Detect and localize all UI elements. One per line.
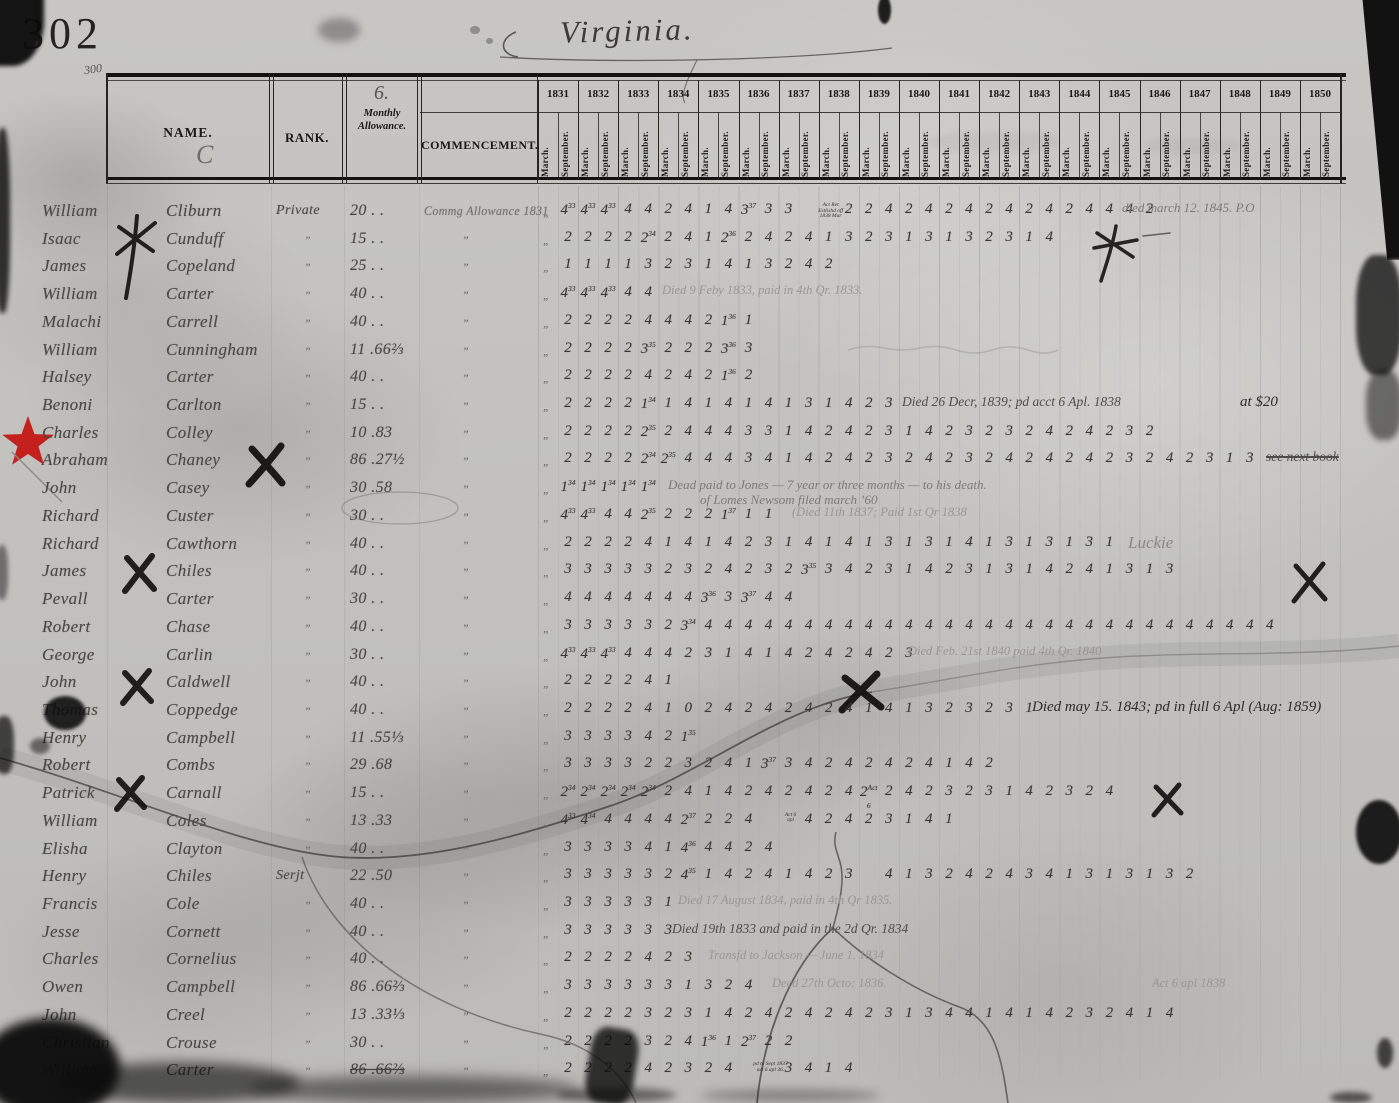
payment-digit: 2 <box>779 256 799 273</box>
payment-digit: 2 <box>698 700 718 717</box>
month-label-september: September. <box>600 114 617 177</box>
payment-digit: 4 <box>799 811 819 828</box>
surname: Campbell <box>166 728 235 748</box>
ledger-row: BenoniCarlton”15 . .”„222213414141413142… <box>0 395 1399 423</box>
payment-digit: 4 <box>1160 450 1180 467</box>
payment-digit: 3 <box>618 728 638 745</box>
payment-digit: 1 <box>779 423 799 440</box>
ledger-row: WilliamCarter”40 . .”„43343343344Died 9 … <box>0 284 1399 312</box>
rank-ditto: ” <box>304 1009 311 1024</box>
payment-digit: 4 <box>678 229 698 246</box>
allowance-value: 40 . . <box>350 535 384 553</box>
annotation-note: Died 26 Decr, 1839; pd acct 6 Apl. 1838 <box>902 394 1121 410</box>
payment-digit: 4 <box>638 700 658 717</box>
payment-digit: 3 <box>638 1033 658 1050</box>
payment-digit: 4 <box>678 783 698 800</box>
allowance-value: 30 .58 <box>350 479 392 497</box>
payment-digit: 4 <box>839 755 859 772</box>
payment-digit: 4 <box>779 645 799 662</box>
payment-digit: 2 <box>1139 450 1159 467</box>
payment-digit: 2 <box>658 506 678 523</box>
annotation-note: Dead paid to Jones — 7 year or three mon… <box>668 477 987 493</box>
surname: Custer <box>166 506 214 526</box>
commencement-ditto: ” <box>462 953 469 968</box>
payment-digit: 2 <box>658 423 678 440</box>
payment-digit: 2 <box>718 811 738 828</box>
commencement-ditto: ” <box>462 1037 469 1052</box>
payment-digit: 4 <box>839 700 859 717</box>
payment-digit: 4 <box>678 423 698 440</box>
payment-digit: 3 <box>578 894 598 911</box>
allowance-value: 40 . . <box>350 285 384 303</box>
payment-digit: 4 <box>819 617 839 634</box>
payment-digit: 2 <box>859 201 879 218</box>
payment-digit: 2 <box>939 450 959 467</box>
payment-digit: 1 <box>1019 1005 1039 1022</box>
ledger-row: RichardCuster”30 . .”„433433442352221371… <box>0 506 1399 534</box>
payment-digit: 336 <box>698 589 718 607</box>
payment-digit: 3 <box>959 561 979 578</box>
payment-digit: 4 <box>1099 201 1119 218</box>
payment-digit: 3 <box>618 839 638 856</box>
payment-digit: 2 <box>598 229 618 246</box>
payment-digit: 4 <box>879 700 899 717</box>
payment-digit: 3 <box>598 561 618 578</box>
payment-digit: 4 <box>879 617 899 634</box>
payment-digit: 3 <box>558 561 578 578</box>
payment-digit: 3 <box>778 1060 798 1077</box>
payment-digit: 4 <box>678 367 698 384</box>
payment-digit: 2 <box>698 811 718 828</box>
payment-digit: 3 <box>819 561 839 578</box>
payment-digit: 3 <box>578 839 598 856</box>
payment-digit: 1 <box>779 866 799 883</box>
payment-digit: 2 <box>698 506 718 523</box>
top-smudge <box>318 18 360 42</box>
payment-digit: 3 <box>839 229 859 246</box>
ledger-row: OwenCampbell”86 .66⅔”„3333331324Decd 27t… <box>0 977 1399 1005</box>
payment-digit: 136 <box>718 367 738 385</box>
payment-digit: 3 <box>759 561 779 578</box>
payment-digit: 134 <box>638 395 658 413</box>
payment-digit: 4 <box>1039 201 1059 218</box>
payment-digit: 4 <box>718 201 738 218</box>
payment-digit: 4 <box>618 201 638 218</box>
month-label-september: September. <box>640 114 657 177</box>
payment-digit: 4 <box>779 617 799 634</box>
payment-digit: 3 <box>698 977 718 994</box>
payment-digit: 4 <box>658 811 678 828</box>
commencement-ditto: ” <box>462 981 469 996</box>
lead-ditto: „ <box>543 704 550 719</box>
payment-digit: 3 <box>658 977 678 994</box>
payment-digit: 1 <box>1019 561 1039 578</box>
payment-digit: 2 <box>638 755 658 772</box>
lead-ditto: „ <box>543 759 550 774</box>
payment-digit: 1 <box>658 534 678 551</box>
payment-digit: 2 <box>658 1005 678 1022</box>
allowance-value: 40 . . <box>350 368 384 386</box>
annotation-note: at $20 <box>1240 394 1278 411</box>
ledger-row: HenryChilesSerjt22 .50”„3333324351424142… <box>0 866 1399 894</box>
payment-digit: 135 <box>678 728 698 746</box>
payment-digit: 1 <box>979 534 999 551</box>
payment-digit: 4 <box>919 617 939 634</box>
given-name: Isaac <box>42 229 81 249</box>
payment-digit: 2 <box>859 561 879 578</box>
payment-digit: 0 <box>678 700 698 717</box>
payment-digit: 3 <box>999 561 1019 578</box>
payment-digit: 4 <box>879 866 899 883</box>
top-speck-2 <box>486 38 493 44</box>
payment-digit: 4 <box>718 617 738 634</box>
payment-digit: 4 <box>939 617 959 634</box>
payment-digit: 134 <box>638 478 658 496</box>
payment-digit: 4 <box>919 201 939 218</box>
edge-damage-left-1 <box>0 128 10 313</box>
payment-digit: 3 <box>779 755 799 772</box>
payment-digit: 234 <box>638 450 658 468</box>
allowance-value: 40 . . <box>350 895 384 913</box>
payment-digit: 2 <box>919 783 939 800</box>
payment-digit: 3 <box>578 922 598 939</box>
payment-digit: 1 <box>738 395 758 412</box>
payment-digit: 2 <box>658 728 678 745</box>
payment-digit: 4 <box>799 423 819 440</box>
surname: Chiles <box>166 561 212 581</box>
payment-digit: 1 <box>899 866 919 883</box>
payment-digit: 234 <box>558 783 578 801</box>
lead-ditto: „ <box>543 205 550 220</box>
month-label-march: March. <box>861 114 878 177</box>
payment-digit: 2 <box>819 450 839 467</box>
payment-digit: 4 <box>799 534 819 551</box>
header-border-allow-comm-b <box>421 74 422 183</box>
payment-digit: 2 <box>819 256 839 273</box>
payment-digit: 4 <box>759 450 779 467</box>
payment-digit: 2 <box>678 506 698 523</box>
allowance-value: 30 . . <box>350 1034 384 1052</box>
ledger-row: WilliamCliburnPrivate20 . .Commg Allowan… <box>0 201 1399 229</box>
payment-digit: 2 <box>578 672 598 689</box>
payment-digit: 1 <box>899 534 919 551</box>
payment-digit: 2 <box>819 866 839 883</box>
allowance-value: 40 . . <box>350 562 384 580</box>
surname: Cole <box>166 894 200 914</box>
payment-digit: 4 <box>759 589 779 606</box>
payment-digit: 2 <box>979 229 999 246</box>
payment-digit: 3 <box>598 755 618 772</box>
commencement-ditto: ” <box>462 538 469 553</box>
edge-damage-right-2 <box>1356 255 1399 375</box>
payment-digit: 4 <box>759 783 779 800</box>
payment-digit: 435 <box>678 866 698 884</box>
surname: Carrell <box>166 312 218 332</box>
payment-digit: 3 <box>759 534 779 551</box>
commencement-ditto: ” <box>462 1009 469 1024</box>
given-name: Robert <box>42 617 91 637</box>
surname: Colley <box>166 423 213 443</box>
edge-damage-left-3 <box>0 716 14 774</box>
payment-digit: 1 <box>999 783 1019 800</box>
lead-ditto: „ <box>543 953 550 968</box>
year-label: 1840 <box>899 88 939 100</box>
payment-digit: 1 <box>819 1060 839 1077</box>
year-label: 1846 <box>1140 88 1180 100</box>
payment-digit: 3 <box>638 922 658 939</box>
payment-digit: 2 <box>598 450 618 467</box>
payment-digit: 3 <box>678 561 698 578</box>
month-label-september: September. <box>1281 114 1298 177</box>
payment-digit: 4 <box>658 589 678 606</box>
payment-digit: 3 <box>1039 534 1059 551</box>
payment-digit: 3 <box>638 256 658 273</box>
lead-ditto: „ <box>543 870 550 885</box>
lead-ditto: „ <box>543 732 550 747</box>
payment-digit: 2 <box>819 700 839 717</box>
payment-digit: 3 <box>558 977 578 994</box>
payment-digit: 134 <box>578 478 598 496</box>
lead-ditto: „ <box>543 344 550 359</box>
rank-ditto: ” <box>304 649 311 664</box>
allowance-header-line2: Allowance. <box>345 121 419 132</box>
payment-digit: 1 <box>1139 561 1159 578</box>
payment-digit: 2 <box>819 783 839 800</box>
commencement-ditto: ” <box>462 759 469 774</box>
payment-digit: 134 <box>598 478 618 496</box>
payment-digit: 4 <box>1139 617 1159 634</box>
given-name: Richard <box>42 534 99 554</box>
surname: Carlton <box>166 395 222 415</box>
header-border-name-rank-b <box>273 74 274 183</box>
payment-digit: 2 <box>859 450 879 467</box>
payment-digit: 2 <box>558 1005 578 1022</box>
payment-digit: 2 <box>678 645 698 662</box>
payment-digit: 4 <box>859 617 879 634</box>
surname: Caldwell <box>166 672 231 692</box>
payment-digit: 1 <box>1099 534 1119 551</box>
commencement-ditto: ” <box>462 870 469 885</box>
payment-digit: 4 <box>1079 617 1099 634</box>
payment-digit: 4 <box>638 367 658 384</box>
allowance-value: 15 . . <box>350 396 384 414</box>
payment-digit: 4 <box>1119 1005 1139 1022</box>
rank-ditto: ” <box>304 399 311 414</box>
payment-digit: 4 <box>718 866 738 883</box>
payment-digit: 2 <box>658 229 678 246</box>
payment-digit: 4 <box>678 312 698 329</box>
commencement-column-header: COMMENCEMENT. <box>421 138 537 153</box>
surname: Carlin <box>166 645 213 665</box>
month-label-september: September. <box>1121 114 1138 177</box>
month-label-march: March. <box>901 114 918 177</box>
payment-digit: 2 <box>899 201 919 218</box>
payment-digit: 2 <box>578 700 598 717</box>
payment-digit: 3 <box>759 256 779 273</box>
commencement-ditto: ” <box>462 843 469 858</box>
payment-digit: 3 <box>879 229 899 246</box>
payment-digit: 4 <box>638 728 658 745</box>
payment-digit: 3 <box>678 1060 698 1077</box>
ledger-row: JohnCreel”13 .33⅓”„222232314242424231344… <box>0 1005 1399 1033</box>
payment-digit: 1 <box>1019 229 1039 246</box>
given-name: Richard <box>42 506 99 526</box>
payment-digit: 4 <box>799 700 819 717</box>
allowance-value: 13 .33⅓ <box>350 1006 405 1024</box>
payment-digit: 4 <box>718 256 738 273</box>
payment-digit: 4 <box>638 949 658 966</box>
payment-digit: 2 <box>779 1005 799 1022</box>
month-label-september: September. <box>1321 114 1338 177</box>
commencement-ditto: ” <box>462 649 469 664</box>
payment-digit: 3 <box>578 728 598 745</box>
commencement-ditto: ” <box>462 926 469 941</box>
payment-digit: 3 <box>718 589 738 606</box>
payment-digit: 2 <box>658 367 678 384</box>
payment-digit: 2 <box>859 755 879 772</box>
given-name: James <box>42 561 86 581</box>
payment-digit: 433 <box>558 284 578 302</box>
payment-digit: 2 <box>618 1005 638 1022</box>
month-subdivider <box>598 112 599 180</box>
lead-ditto: „ <box>543 1037 550 1052</box>
payment-digit: 2 <box>698 1060 718 1077</box>
payment-digit: 3 <box>638 1005 658 1022</box>
payment-digit: 3 <box>558 866 578 883</box>
payment-digit: 2 <box>598 340 618 357</box>
payment-digit: 1 <box>1139 866 1159 883</box>
payment-digit: 2 <box>1059 1005 1079 1022</box>
payment-digit: 433 <box>558 811 578 829</box>
month-label-september: September. <box>840 114 857 177</box>
payment-digit: 3 <box>879 423 899 440</box>
payment-digit: 1 <box>979 1005 999 1022</box>
payment-digit: 1 <box>698 866 718 883</box>
edge-speck-right-bottom-2 <box>1330 1092 1372 1103</box>
payment-digit: 4 <box>819 645 839 662</box>
lead-ditto: „ <box>543 510 550 525</box>
month-subdivider <box>558 112 559 180</box>
payment-digit: 4 <box>1019 617 1039 634</box>
surname: Carter <box>166 589 214 609</box>
payment-digit: 235 <box>638 506 658 524</box>
allowance-value: 86 .66⅔ <box>350 978 405 996</box>
payment-digit: 3 <box>1079 866 1099 883</box>
ledger-row: CharlesCornelius”40 . .”„2222423Transfd … <box>0 949 1399 977</box>
payment-digit: 1 <box>899 1005 919 1022</box>
payment-digit: 3 <box>558 755 578 772</box>
payment-digit: 3 <box>618 755 638 772</box>
payment-digit: 4 <box>839 1005 859 1022</box>
payment-digit: 4 <box>999 450 1019 467</box>
payment-digit: 2 <box>558 450 578 467</box>
payment-digit: 2 <box>598 367 618 384</box>
month-label-march: March. <box>781 114 798 177</box>
month-label-september: September. <box>880 114 897 177</box>
ledger-row: JesseCornett”40 . .”„333333Died 19th 183… <box>0 922 1399 950</box>
payment-digit: 2 <box>859 811 879 828</box>
allowance-value: 11 .66⅔ <box>350 341 404 359</box>
payment-digit: 3 <box>1200 450 1220 467</box>
lead-ditto: „ <box>543 593 550 608</box>
given-name: Patrick <box>42 783 95 803</box>
payment-digit: 1 <box>658 839 678 856</box>
payment-digit: 2 <box>738 229 758 246</box>
surname: Cornett <box>166 922 221 942</box>
payment-digit: 1 <box>598 256 618 273</box>
payment-digit: 1 <box>899 811 919 828</box>
allowance-value: 40 . . <box>350 673 384 691</box>
surname: Chiles <box>166 866 212 886</box>
lead-ditto: „ <box>543 288 550 303</box>
month-label-september: September. <box>800 114 817 177</box>
allowance-value: 40 . . <box>350 923 384 941</box>
payment-digit: 1 <box>698 783 718 800</box>
payment-digit: 3 <box>979 783 999 800</box>
surname: Combs <box>166 755 215 775</box>
payment-digit: 4 <box>1039 423 1059 440</box>
payment-digit: 4 <box>759 617 779 634</box>
payment-digit: 2 <box>678 340 698 357</box>
ink-blob-thomas-2 <box>30 738 50 754</box>
payment-digit: 4 <box>1039 1005 1059 1022</box>
lead-ditto: „ <box>543 482 550 497</box>
surname: Chaney <box>166 450 220 470</box>
bleedthrough-smudge-2 <box>1145 138 1240 154</box>
payment-digit: 2 <box>658 1060 678 1077</box>
lead-ditto: „ <box>543 427 550 442</box>
rank-ditto: ” <box>304 316 311 331</box>
allowance-value: 40 . . <box>350 618 384 636</box>
month-label-march: March. <box>1101 114 1118 177</box>
year-label: 1831 <box>538 88 578 100</box>
payment-digit: 2 <box>738 783 758 800</box>
payment-digit: 4 <box>598 506 618 523</box>
surname: Cunduff <box>166 229 224 249</box>
payment-digit: 4 <box>919 811 939 828</box>
title-underline <box>500 48 892 60</box>
payment-digit: 2 <box>738 839 758 856</box>
payment-digit: 4 <box>999 617 1019 634</box>
payment-digit: 2 <box>698 755 718 772</box>
edge-smear-bottom-3 <box>700 1090 880 1101</box>
payment-digit: 4 <box>759 866 779 883</box>
payment-digit: 3 <box>558 894 578 911</box>
given-name: Robert <box>42 755 91 775</box>
payment-digit: 3 <box>558 728 578 745</box>
payment-digit: 136 <box>698 1033 718 1051</box>
payment-digit: 2 <box>618 395 638 412</box>
payment-digit: 3 <box>1019 866 1039 883</box>
month-label-march: March. <box>700 114 717 177</box>
payment-digit: 2 <box>899 450 919 467</box>
payment-digit: 3 <box>919 700 939 717</box>
ledger-row: ChristianCrouse”30 . .”„2222324136123722 <box>0 1033 1399 1061</box>
payment-digit: 4 <box>638 534 658 551</box>
payment-digit: 4 <box>799 1060 819 1077</box>
payment-digit: 4 <box>718 755 738 772</box>
payment-digit: 3 <box>618 894 638 911</box>
payment-digit: 1 <box>899 700 919 717</box>
commencement-ditto: ” <box>462 454 469 469</box>
payment-digit: 4 <box>1039 229 1059 246</box>
payment-digit: 4 <box>618 811 638 828</box>
payment-digit: 4 <box>718 561 738 578</box>
payment-digit: 3 <box>959 229 979 246</box>
payment-digit: 3 <box>919 866 939 883</box>
allowance-value: 29 .68 <box>350 756 392 774</box>
payment-digit: 2 <box>1019 201 1039 218</box>
